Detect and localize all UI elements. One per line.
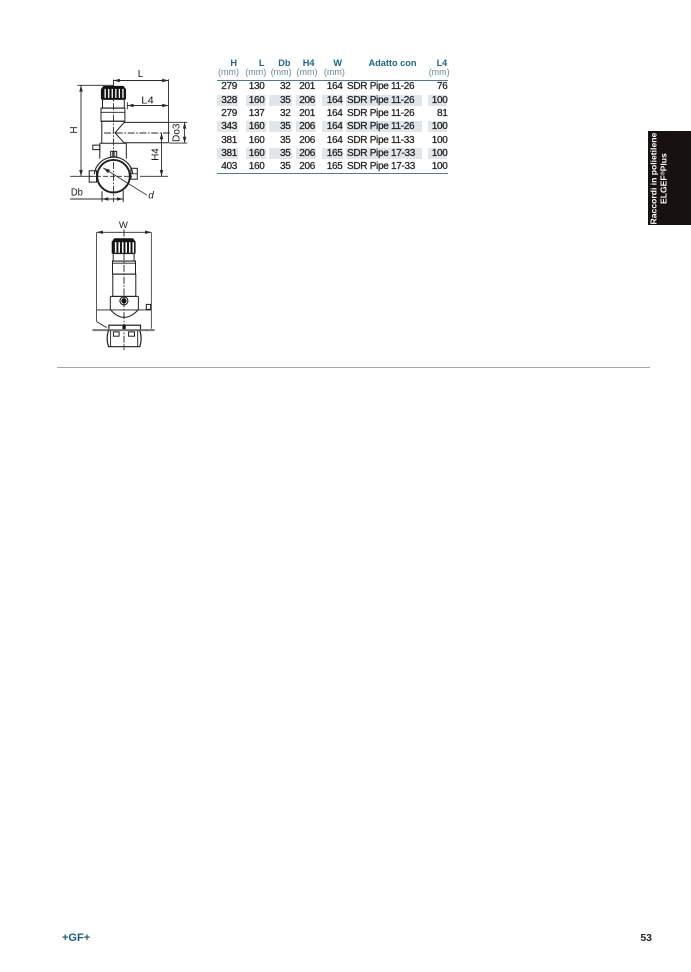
svg-text:W: W [119,220,128,231]
svg-text:L: L [138,69,144,80]
svg-text:Db: Db [71,188,83,199]
svg-text:L4: L4 [141,96,154,107]
svg-text:d: d [148,191,154,202]
svg-text:Do3: Do3 [172,123,183,142]
svg-text:H4: H4 [151,148,162,161]
svg-text:H: H [69,126,80,133]
